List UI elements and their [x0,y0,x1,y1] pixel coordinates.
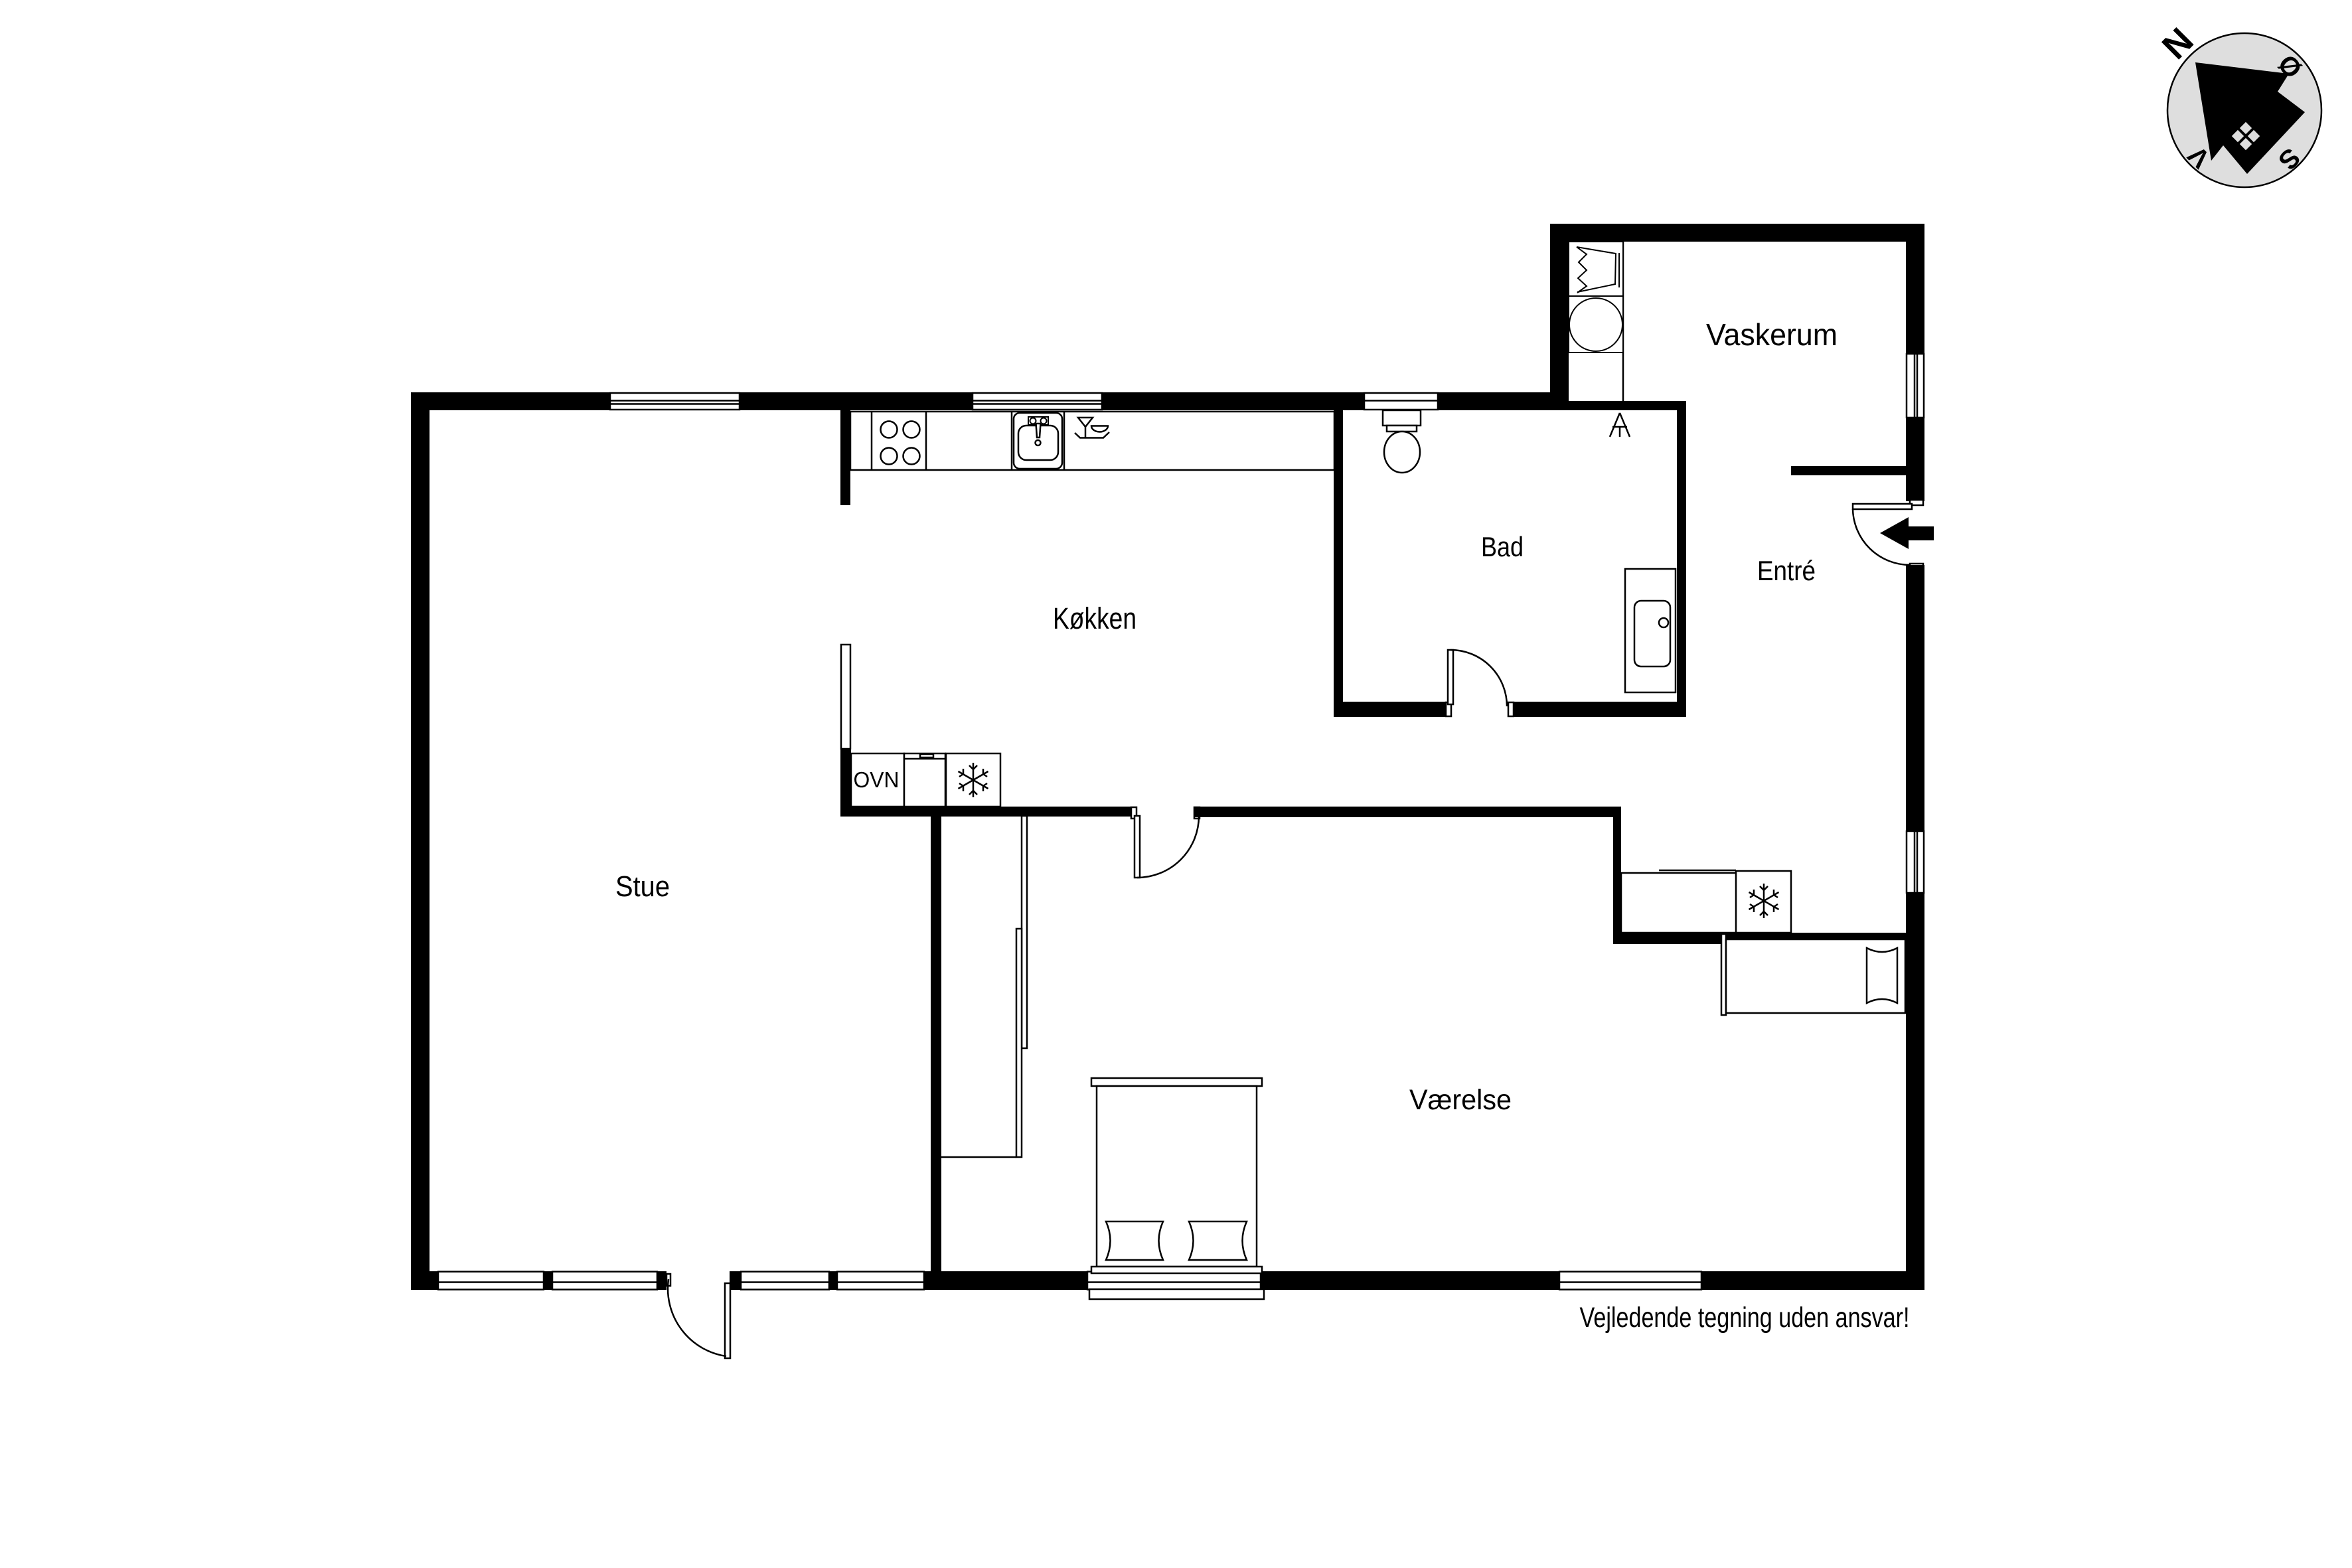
svg-text:OVN: OVN [854,767,900,792]
svg-text:Værelse: Værelse [1409,1084,1512,1116]
svg-text:Vejledende tegning uden ansvar: Vejledende tegning uden ansvar! [1580,1302,1910,1334]
svg-text:Stue: Stue [615,870,670,903]
svg-text:Entré: Entré [1757,555,1816,586]
svg-text:Bad: Bad [1481,531,1524,562]
svg-text:Vaskerum: Vaskerum [1706,317,1838,352]
svg-text:Køkken: Køkken [1053,601,1137,635]
